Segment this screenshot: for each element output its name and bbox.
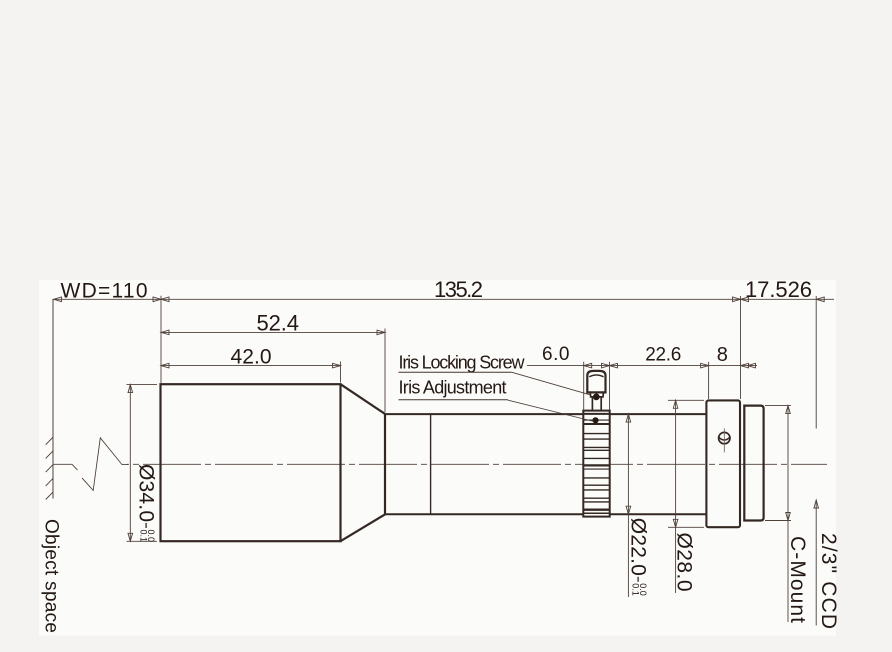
svg-text:0.1: 0.1: [631, 583, 641, 596]
svg-text:Iris Adjustment: Iris Adjustment: [399, 378, 507, 398]
svg-text:2/3" CCD: 2/3" CCD: [817, 533, 840, 629]
svg-text:Iris Locking Screw: Iris Locking Screw: [399, 353, 526, 373]
svg-text:6.0: 6.0: [542, 344, 570, 365]
svg-text:0.1: 0.1: [139, 530, 149, 543]
svg-text:17.526: 17.526: [745, 277, 812, 302]
svg-text:Ø28.0: Ø28.0: [673, 533, 696, 592]
svg-text:135.2: 135.2: [434, 277, 483, 302]
svg-text:52.4: 52.4: [257, 311, 300, 336]
svg-text:Ø22.0: Ø22.0: [627, 518, 650, 576]
svg-text:8: 8: [717, 344, 728, 366]
svg-text:Object space: Object space: [41, 519, 62, 633]
svg-text:42.0: 42.0: [231, 346, 272, 369]
svg-text:22.6: 22.6: [645, 344, 681, 365]
svg-text:Ø34.0: Ø34.0: [135, 464, 158, 522]
svg-text:WD=110: WD=110: [61, 280, 148, 303]
svg-text:C-Mount: C-Mount: [786, 536, 809, 623]
